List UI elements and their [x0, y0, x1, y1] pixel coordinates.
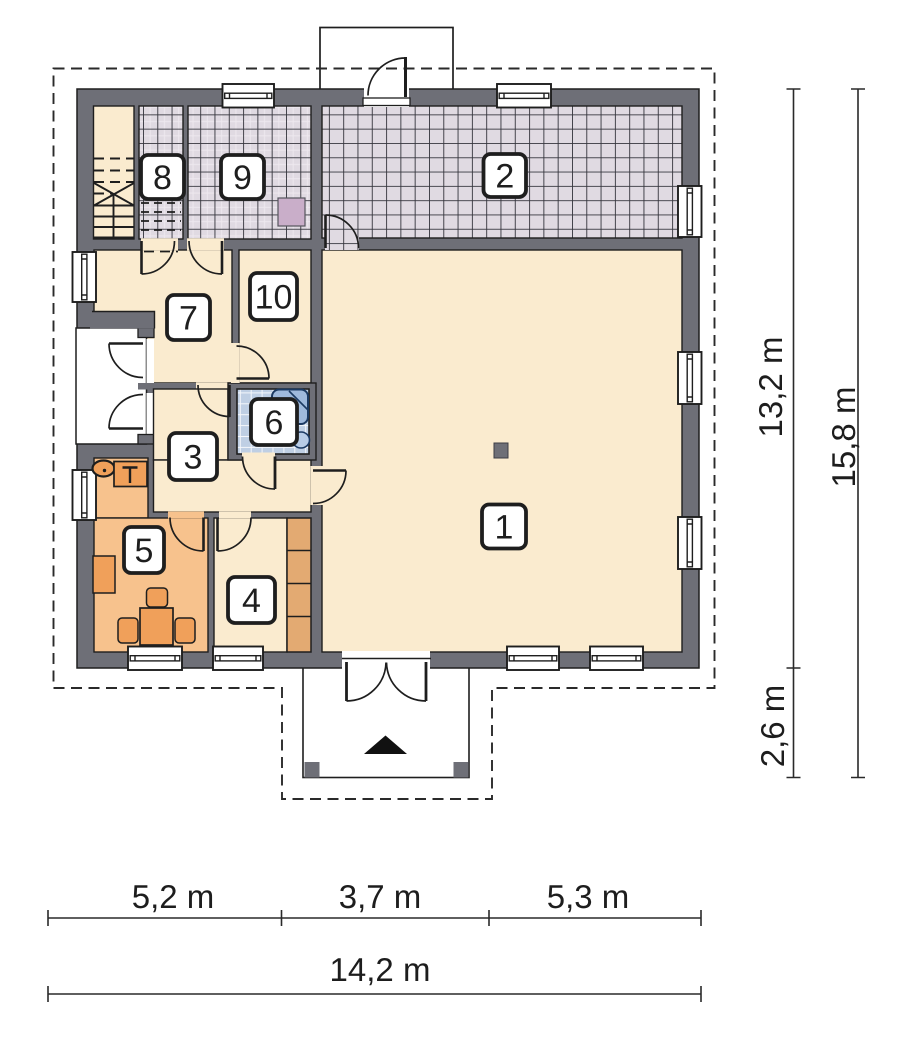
svg-text:9: 9	[233, 159, 252, 197]
svg-text:2: 2	[495, 158, 514, 196]
svg-text:3,7 m: 3,7 m	[339, 878, 422, 915]
svg-text:14,2 m: 14,2 m	[330, 951, 431, 988]
svg-text:8: 8	[153, 159, 172, 197]
svg-text:1: 1	[495, 509, 514, 547]
svg-text:13,2 m: 13,2 m	[752, 337, 789, 438]
svg-text:15,8 m: 15,8 m	[825, 387, 862, 488]
svg-text:2,6 m: 2,6 m	[754, 685, 791, 768]
svg-text:6: 6	[265, 404, 284, 442]
svg-text:7: 7	[179, 300, 198, 338]
svg-text:5,2 m: 5,2 m	[132, 878, 215, 915]
svg-text:5,3 m: 5,3 m	[547, 878, 630, 915]
svg-text:5: 5	[135, 532, 154, 570]
svg-text:3: 3	[184, 439, 203, 477]
svg-text:4: 4	[242, 582, 261, 620]
svg-text:10: 10	[255, 279, 293, 317]
